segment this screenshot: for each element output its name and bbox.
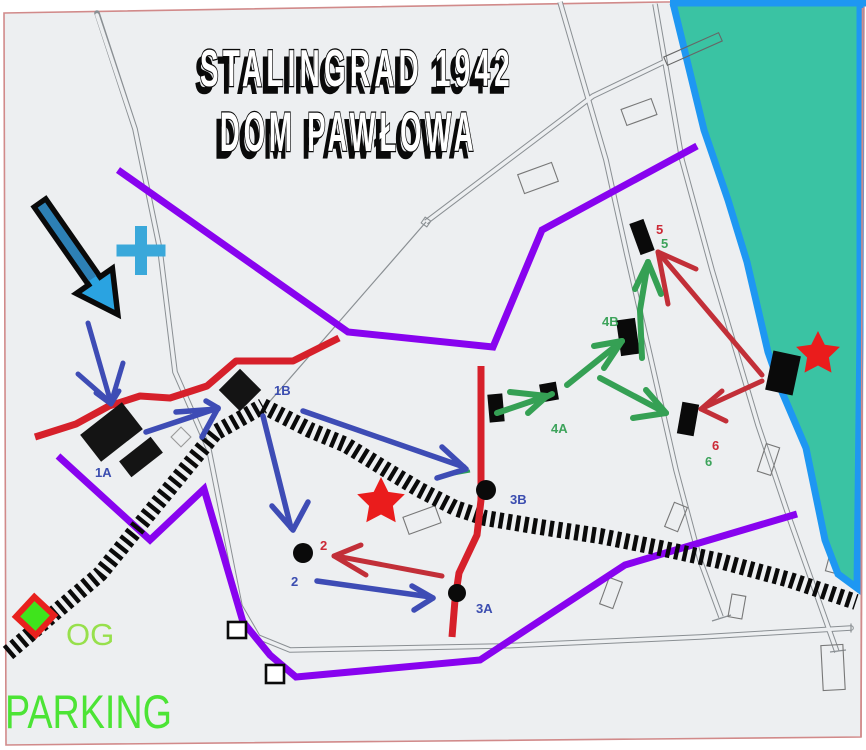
svg-text:3B: 3B (510, 492, 527, 507)
svg-text:DOM PAWŁOWA: DOM PAWŁOWA (220, 101, 477, 163)
svg-text:PARKING: PARKING (5, 685, 172, 738)
svg-text:1B: 1B (274, 383, 291, 398)
svg-text:2: 2 (320, 538, 327, 553)
svg-text:6: 6 (712, 438, 719, 453)
svg-text:4A: 4A (551, 421, 568, 436)
svg-text:3A: 3A (476, 601, 493, 616)
svg-text:6: 6 (705, 454, 712, 469)
svg-text:1A: 1A (95, 465, 112, 480)
svg-text:OG: OG (66, 617, 114, 652)
svg-text:STALINGRAD 1942: STALINGRAD 1942 (200, 39, 514, 98)
svg-text:5: 5 (656, 222, 663, 237)
svg-text:5: 5 (661, 236, 668, 251)
svg-text:2: 2 (291, 574, 298, 589)
svg-text:4B: 4B (602, 314, 619, 329)
